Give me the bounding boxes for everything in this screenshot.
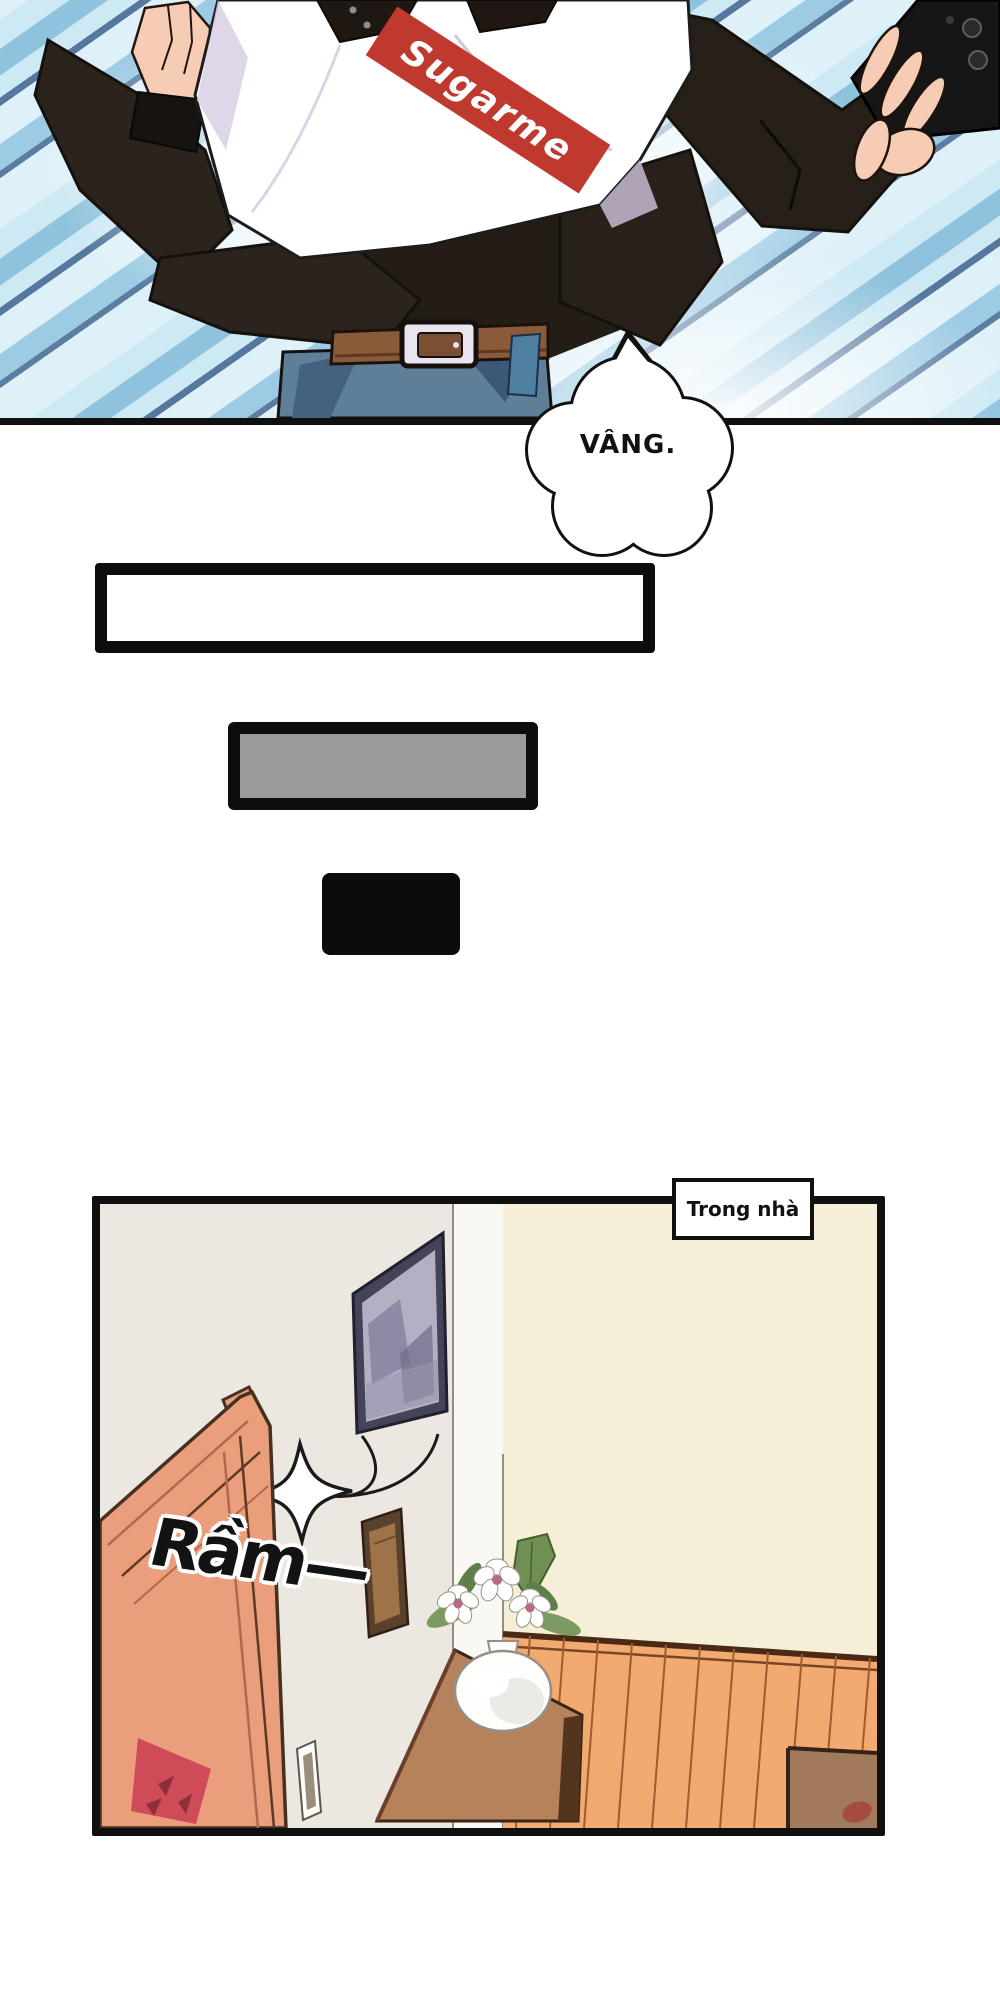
blank-white-box bbox=[95, 563, 655, 653]
blank-black-box bbox=[322, 873, 460, 955]
panel-top-street: Sugarme bbox=[0, 0, 1000, 425]
blank-gray-box bbox=[228, 722, 538, 810]
phone-camera-icon bbox=[969, 51, 987, 69]
side-furniture bbox=[788, 1748, 877, 1828]
speech-bubble-text: VÂNG. bbox=[528, 430, 728, 460]
phone-camera-icon bbox=[963, 19, 981, 37]
caption-box: Trong nhà bbox=[672, 1178, 814, 1240]
comic-page: Sugarme VÂNG. bbox=[0, 0, 1000, 2000]
character-illustration: Sugarme bbox=[0, 0, 1000, 418]
caption-text: Trong nhà bbox=[687, 1197, 800, 1221]
